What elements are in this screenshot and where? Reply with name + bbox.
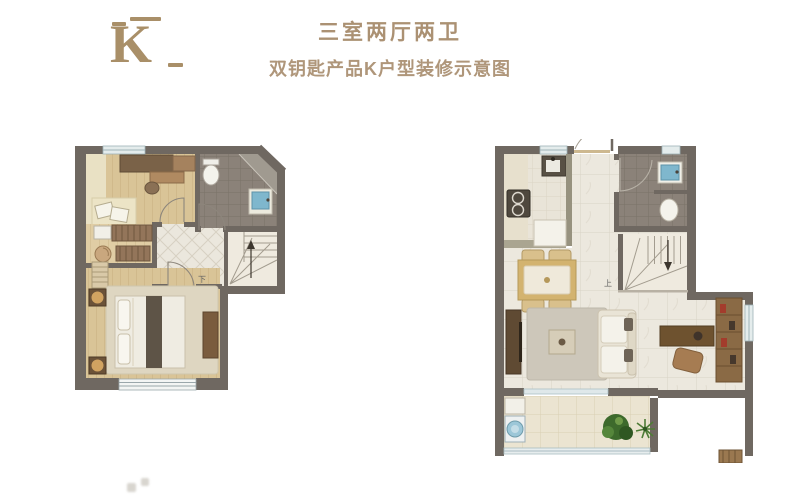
- bedroom-bench: [203, 312, 218, 358]
- vanity-stool: [95, 246, 111, 262]
- stairs-direction-label: 下: [198, 275, 206, 284]
- toilet: [660, 199, 678, 221]
- title-block: 三室两厅两卫 双钥匙产品K户型装修示意图: [180, 16, 600, 81]
- cooktop: [507, 190, 530, 217]
- sofa: [598, 310, 636, 378]
- washing-machine: [505, 416, 525, 442]
- laundry-cabinet: [505, 398, 525, 414]
- cabinet: [94, 226, 111, 239]
- upper-floor-plan: 下: [72, 139, 290, 402]
- desk: [660, 326, 714, 346]
- lower-floor-plan: 上: [489, 139, 757, 463]
- ac-unit: [719, 450, 742, 463]
- entry-door: [574, 139, 612, 153]
- tv-cabinet: [506, 310, 522, 374]
- bathroom-sink: [249, 189, 272, 214]
- coffee-table: [549, 330, 575, 354]
- desk-chair: [145, 182, 159, 194]
- kitchen-sink: [542, 156, 566, 176]
- bed: [115, 296, 185, 368]
- kitchen-island: [534, 220, 566, 246]
- page-subtitle: 双钥匙产品K户型装修示意图: [180, 55, 600, 81]
- toilet: [203, 159, 219, 185]
- step-ladder: [92, 262, 108, 288]
- floor-plan-page: K 三室两厅两卫 双钥匙产品K户型装修示意图: [0, 0, 803, 502]
- faint-watermark: [141, 478, 149, 486]
- logo-letter: K: [110, 14, 152, 74]
- faint-watermark: [127, 483, 136, 492]
- kitchen-partition: [566, 154, 572, 246]
- bookshelf: [716, 298, 742, 382]
- page-title: 三室两厅两卫: [180, 16, 600, 46]
- stairs-direction-label: 上: [604, 279, 612, 288]
- bathroom-sink: [658, 162, 682, 183]
